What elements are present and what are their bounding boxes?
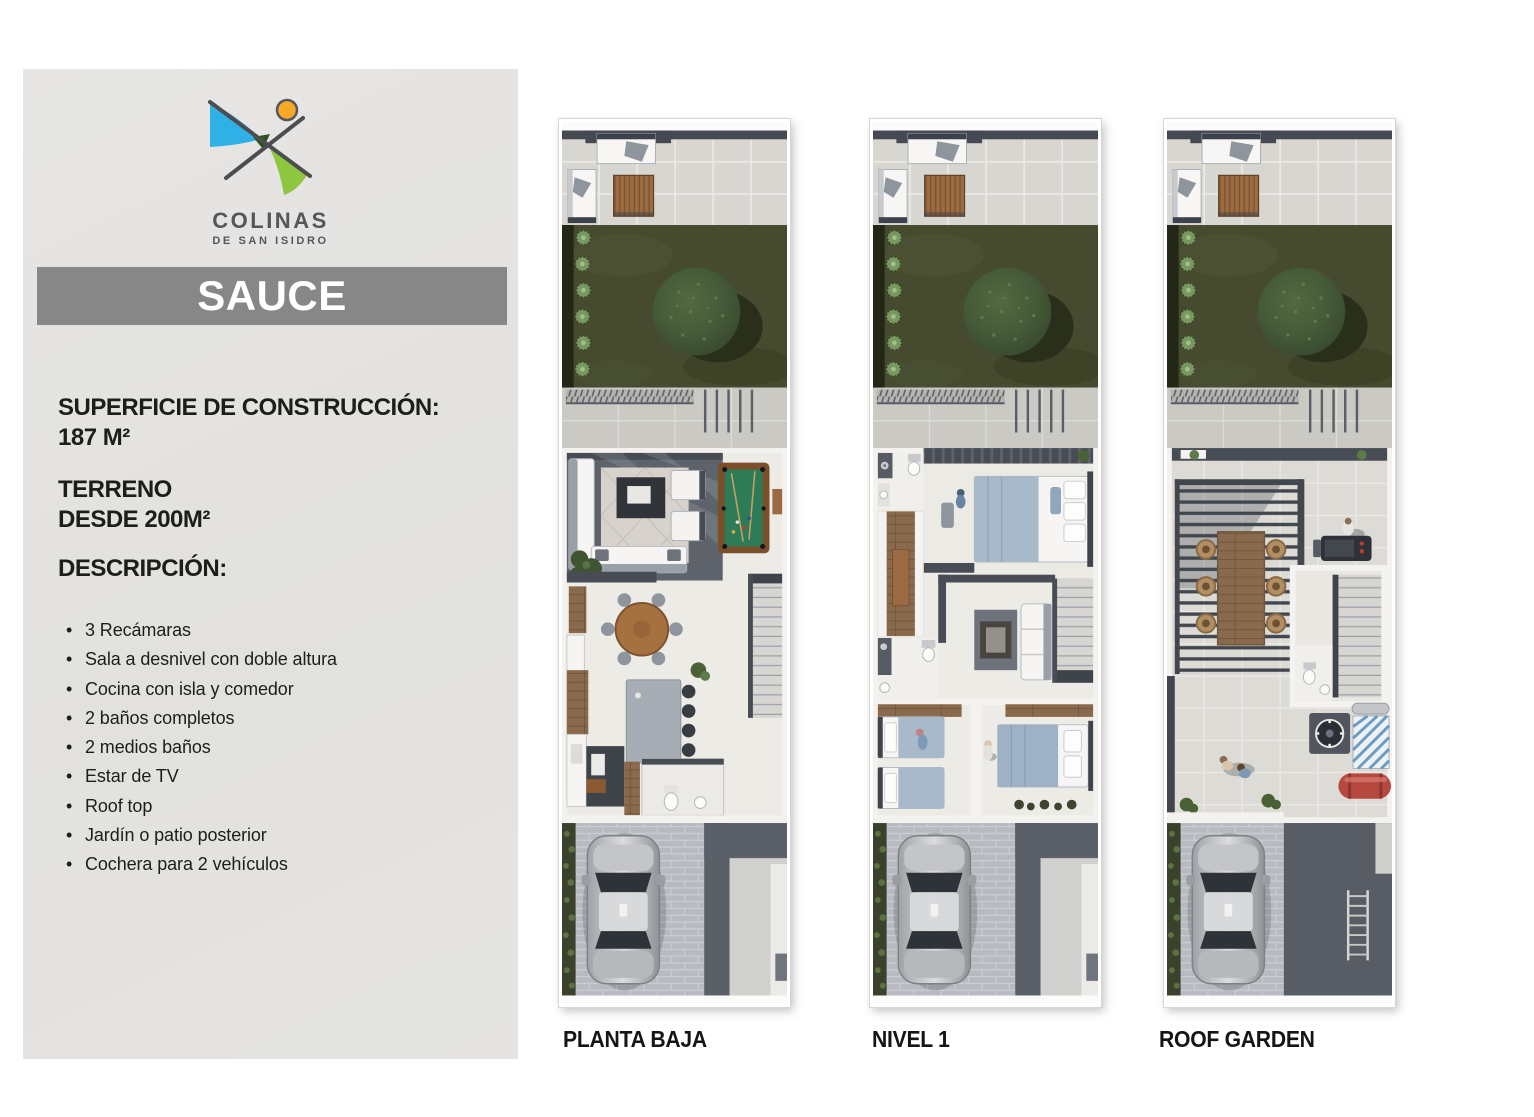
model-banner: SAUCE: [37, 267, 507, 325]
floorplan-planta-baja-image: [562, 122, 787, 1004]
floorplan-nivel-1: [870, 119, 1101, 1007]
feature-item: Estar de TV: [64, 762, 337, 791]
feature-item: 3 Recámaras: [64, 616, 337, 645]
roof-garden-interior: [1167, 448, 1392, 823]
feature-item: Cocina con isla y comedor: [64, 675, 337, 704]
first-level-interior: [873, 448, 1098, 823]
feature-item: Roof top: [64, 792, 337, 821]
feature-item: 2 medios baños: [64, 733, 337, 762]
feature-item: Cochera para 2 vehículos: [64, 850, 337, 879]
construction-label: SUPERFICIE DE CONSTRUCCIÓN:: [58, 393, 439, 423]
brand-name: COLINAS: [23, 208, 518, 234]
floorplan-roof-garden-image: [1167, 122, 1392, 1004]
garage-roof-overlay: [1284, 823, 1392, 995]
construction-value: 187 M²: [58, 423, 439, 453]
colinas-logo-icon: [195, 91, 335, 206]
floorplan-roof-garden: [1164, 119, 1395, 1007]
land-label: TERRENO: [58, 475, 210, 505]
model-name: SAUCE: [197, 272, 347, 320]
land-spec: TERRENO DESDE 200M²: [58, 475, 210, 535]
plan-label-planta-baja: PLANTA BAJA: [563, 1026, 707, 1053]
plan-label-roof-garden: ROOF GARDEN: [1159, 1026, 1315, 1053]
feature-item: Sala a desnivel con doble altura: [64, 645, 337, 674]
construction-spec: SUPERFICIE DE CONSTRUCCIÓN: 187 M²: [58, 393, 439, 453]
land-value: DESDE 200M²: [58, 505, 210, 535]
brand-tagline: DE SAN ISIDRO: [23, 235, 518, 247]
description-heading: DESCRIPCIÓN:: [58, 554, 227, 584]
floorplan-planta-baja: [559, 119, 790, 1007]
plan-label-nivel-1: NIVEL 1: [872, 1026, 950, 1053]
info-panel: COLINAS DE SAN ISIDRO SAUCE SUPERFICIE D…: [23, 69, 518, 1059]
feature-list: 3 Recámaras Sala a desnivel con doble al…: [64, 616, 337, 880]
ground-floor-interior: [562, 448, 787, 823]
feature-item: 2 baños completos: [64, 704, 337, 733]
floorplan-nivel-1-image: [873, 122, 1098, 1004]
feature-item: Jardín o patio posterior: [64, 821, 337, 850]
